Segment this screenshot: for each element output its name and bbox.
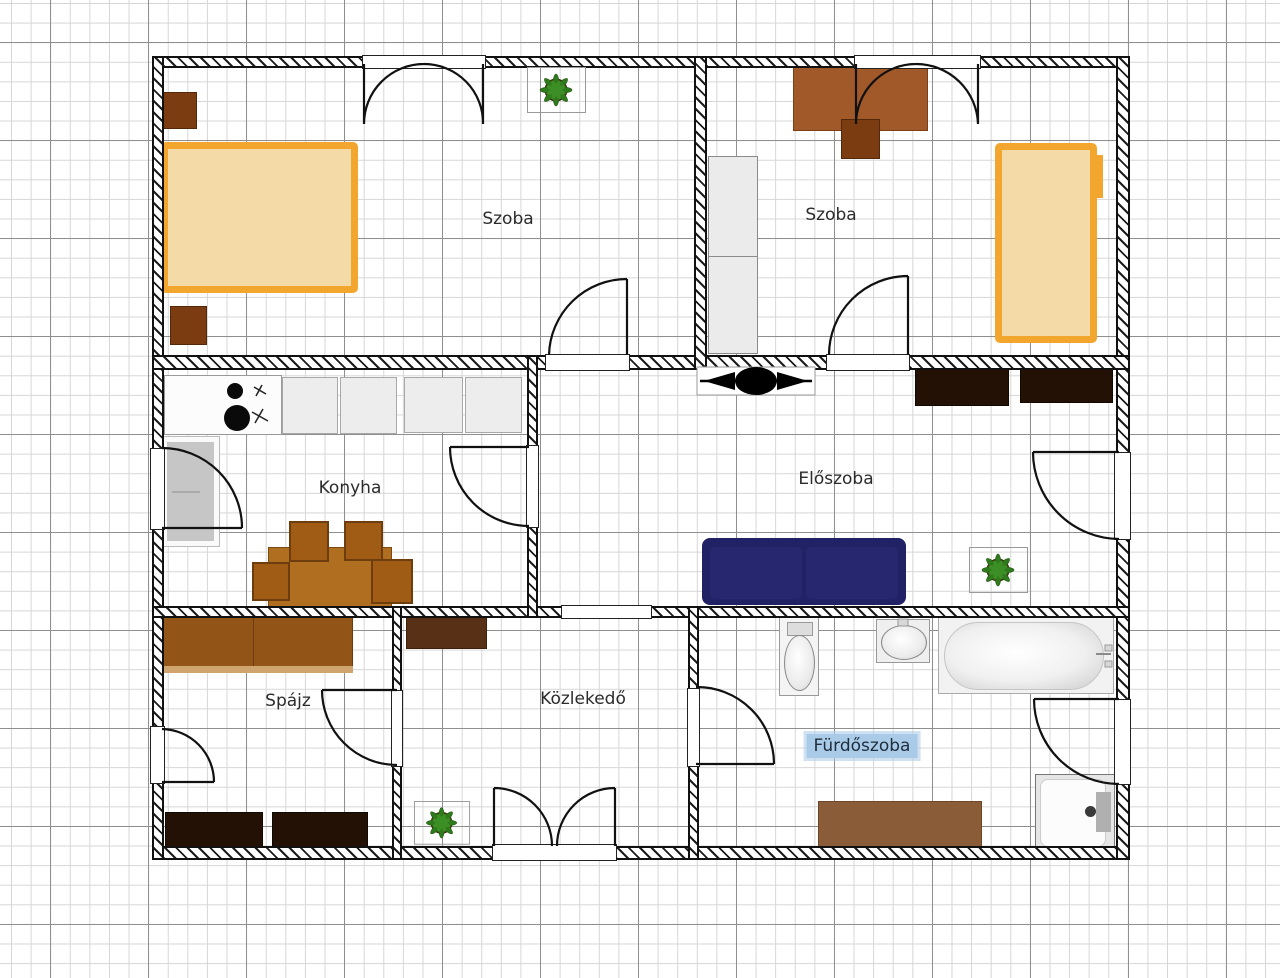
toilet-tank (787, 622, 813, 636)
bathtub[interactable] (938, 617, 1114, 694)
shelf-edge (160, 666, 353, 673)
casement-window[interactable] (364, 64, 483, 124)
room-label-furdoszoba[interactable]: Fürdőszoba (807, 734, 918, 758)
dining-chair[interactable] (344, 521, 383, 561)
room-label-eloszoba[interactable]: Előszoba (798, 469, 873, 489)
door-opening (545, 354, 630, 371)
window-opening (362, 55, 486, 69)
stove-burner (224, 405, 250, 431)
window-opening (854, 55, 981, 69)
wall-exterior-bottom (152, 846, 1130, 860)
potted-plant[interactable] (414, 801, 469, 844)
dark-cabinet[interactable] (165, 812, 263, 850)
refrigerator-handle (172, 491, 200, 493)
kitchen-counter[interactable] (465, 377, 522, 433)
door-opening (687, 688, 700, 767)
door-opening (391, 690, 403, 767)
desk-chair[interactable] (841, 119, 880, 159)
floor-plan-canvas: { "app": {"type": "floor-plan-editor", "… (0, 0, 1280, 978)
dining-chair[interactable] (252, 562, 290, 601)
wall-middle-upper (152, 355, 1130, 370)
interior-door[interactable] (696, 687, 774, 764)
door-opening (526, 445, 539, 528)
door-opening (150, 448, 165, 530)
dark-cabinet[interactable] (1020, 365, 1113, 403)
room-label-szoba-left[interactable]: Szoba (482, 209, 533, 229)
sofa[interactable] (702, 538, 906, 605)
dark-cabinet[interactable] (915, 367, 1009, 406)
kitchen-counter[interactable] (282, 377, 338, 434)
kitchen-counter[interactable] (340, 377, 397, 434)
shower[interactable] (1035, 774, 1115, 852)
bathroom-sink[interactable] (876, 619, 930, 663)
pantry-shelf[interactable] (160, 615, 353, 667)
interior-door[interactable] (829, 276, 908, 355)
refrigerator[interactable] (161, 436, 220, 547)
wardrobe-divider (709, 256, 757, 257)
potted-plant[interactable] (528, 68, 586, 113)
dining-chair[interactable] (289, 521, 329, 562)
door-opening (826, 354, 910, 371)
dark-cabinet[interactable] (272, 812, 368, 850)
entry-door[interactable] (1033, 452, 1119, 539)
dining-chair[interactable] (371, 559, 413, 604)
room-label-kozlekedo[interactable]: Közlekedő (540, 689, 626, 709)
sink-basin (881, 625, 927, 660)
single-bed[interactable] (995, 143, 1097, 343)
window-opening (150, 726, 165, 784)
shower-drain (1085, 806, 1096, 817)
door-opening (1114, 452, 1131, 540)
interior-door[interactable] (549, 279, 627, 355)
bath-rug[interactable] (818, 801, 982, 850)
ceiling-fan[interactable] (697, 367, 815, 395)
passage-opening (561, 605, 652, 619)
double-bed[interactable] (161, 142, 358, 293)
sofa-cushion (710, 547, 802, 599)
double-entry-door[interactable] (494, 788, 615, 846)
kitchen-counter[interactable] (404, 377, 463, 433)
toilet-bowl (784, 635, 815, 691)
room-label-konyha[interactable]: Konyha (319, 478, 382, 498)
nightstand[interactable] (170, 306, 207, 345)
hall-cabinet[interactable] (406, 617, 487, 649)
wardrobe[interactable] (708, 156, 758, 354)
exterior-door[interactable] (1034, 699, 1119, 784)
room-label-szoba-right[interactable]: Szoba (805, 205, 856, 225)
bed-shelf[interactable] (1093, 155, 1103, 198)
room-label-spajz[interactable]: Spájz (265, 691, 311, 711)
stove-counter[interactable] (164, 375, 282, 435)
casement-window[interactable] (162, 729, 214, 782)
wall-exterior-top (152, 56, 1130, 68)
door-opening (492, 844, 617, 861)
stove-burner (227, 383, 243, 399)
shelf-divider (253, 616, 254, 666)
toilet[interactable] (779, 617, 819, 696)
interior-door[interactable] (450, 447, 529, 526)
wall-bedrooms-divider (694, 56, 707, 370)
shower-panel (1096, 792, 1111, 832)
potted-plant[interactable] (970, 548, 1028, 593)
interior-door[interactable] (322, 690, 397, 765)
door-opening (1114, 699, 1131, 785)
sofa-cushion (806, 547, 898, 599)
bathtub-basin (944, 622, 1104, 690)
